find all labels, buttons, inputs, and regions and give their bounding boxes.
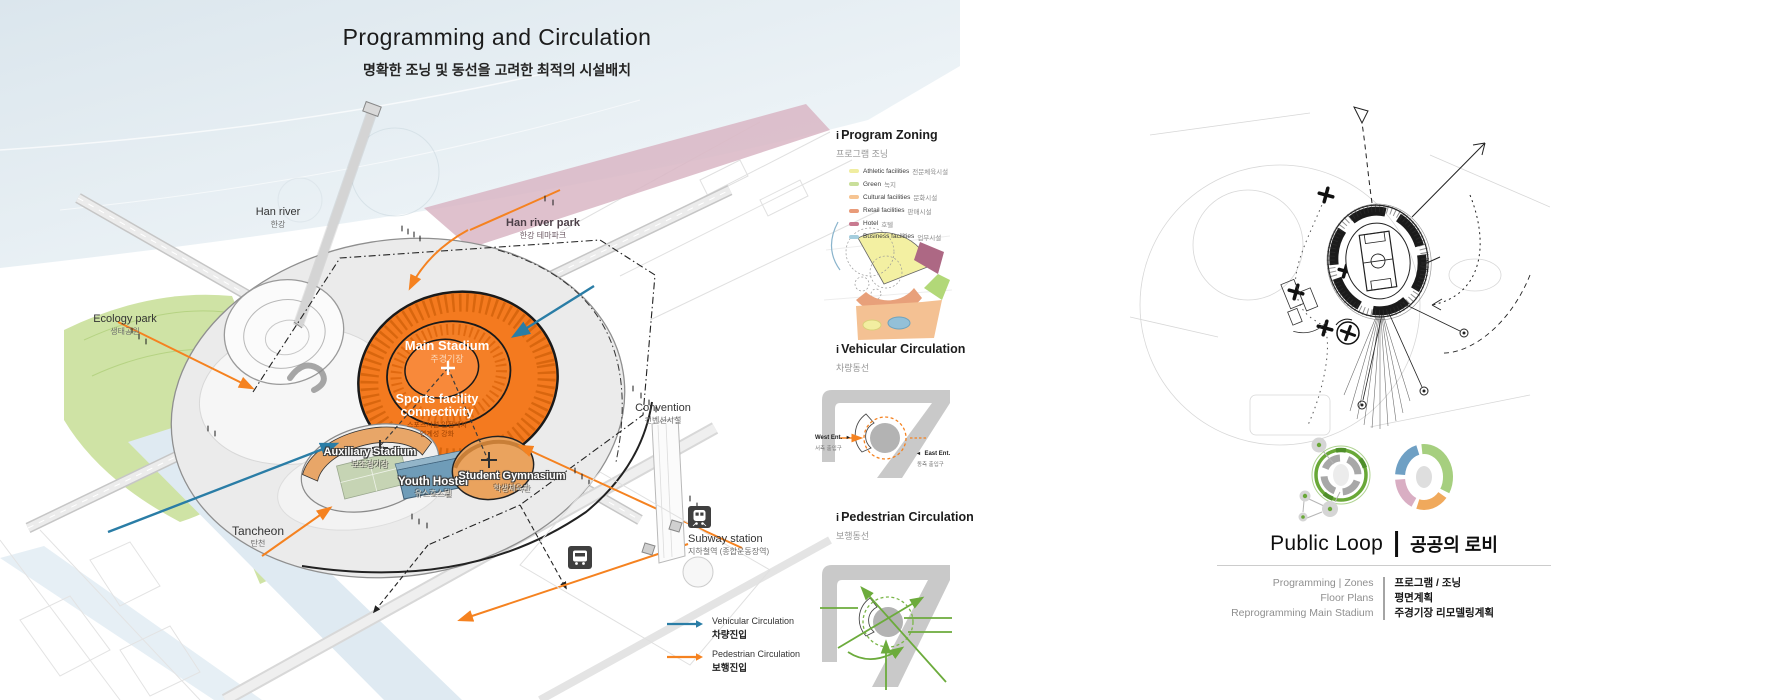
page-subtitle: 명확한 조닝 및 동선을 고려한 최적의 시설배치: [343, 60, 652, 80]
program-row: Programming | Zones: [1196, 576, 1374, 591]
label-tancheon: Tancheon 탄천: [232, 524, 284, 549]
program-row: Reprogramming Main Stadium: [1196, 606, 1374, 621]
legend-vehicular: Vehicular Circulation 차량진입: [666, 616, 800, 641]
label-east-entrance: ◂ East Ent. 동측 출입구: [917, 441, 950, 469]
info-icon: i: [836, 344, 839, 356]
color-swatch: [849, 235, 859, 239]
label-han-river-park: Han river park 한강 테마파크: [506, 217, 580, 241]
zoning-legend-item: Cultural facilities문화시설: [849, 192, 948, 202]
info-icon: i: [836, 130, 839, 142]
divider-bar: [1395, 531, 1398, 557]
info-icon: i: [836, 512, 839, 524]
zoning-legend: Athletic facilities전문체육시설 Green녹지 Cultur…: [849, 166, 948, 245]
subway-icon: [688, 506, 711, 528]
legend-pedestrian: Pedestrian Circulation 보행진입: [666, 649, 800, 674]
color-swatch: [849, 209, 859, 213]
pedestrian-mini-diagram: [820, 565, 952, 690]
board-title-block: Programming and Circulation 명확한 조닝 및 동선을…: [343, 24, 652, 80]
map-legend: Vehicular Circulation 차량진입 Pedestrian Ci…: [666, 616, 800, 682]
page-title: Programming and Circulation: [343, 24, 652, 51]
label-connectivity: Sports facility connectivity 스포츠시설 인접배치 …: [396, 393, 479, 439]
color-swatch: [849, 182, 859, 186]
label-convention: Convention 컨벤션시설: [635, 402, 691, 426]
color-swatch: [849, 222, 859, 226]
zoning-legend-item: Hotel호텔: [849, 219, 948, 229]
label-ecology-park: Ecology park 생태공원: [93, 313, 157, 337]
section-pedestrian-circulation: iPedestrian Circulation 보행동선: [836, 508, 974, 542]
public-loop-title: Public Loop 공공의 로비: [1270, 531, 1498, 557]
sketch-dash-path: [1295, 195, 1327, 425]
label-student-gymnasium: Student Gymnasium 학생체육관: [459, 470, 566, 494]
horizontal-rule: [1217, 565, 1551, 566]
label-han-river: Han river 한강: [256, 206, 301, 230]
zoning-legend-item: Athletic facilities전문체육시설: [849, 166, 948, 176]
program-row: 프로그램 / 조닝: [1395, 576, 1573, 591]
color-swatch: [849, 195, 859, 199]
zoning-legend-item: Business facilities업무시설: [849, 232, 948, 242]
sketch-buildings: [1275, 274, 1327, 338]
label-main-stadium: Main Stadium 주경기장: [405, 338, 490, 366]
concept-sketch-svg: [1130, 95, 1550, 455]
presentation-board: Programming and Circulation 명확한 조닝 및 동선을…: [0, 0, 1772, 700]
label-youth-hostel: Youth Hostel 유스호스텔: [398, 475, 468, 499]
color-swatch: [849, 169, 859, 173]
program-list: Programming | Zones Floor Plans Reprogra…: [1196, 576, 1573, 621]
program-row: 평면계획: [1395, 591, 1573, 606]
label-auxiliary-stadium: Auxiliary Stadium 보조경기장: [324, 446, 417, 470]
vertical-divider: [1384, 577, 1385, 620]
program-list-en: Programming | Zones Floor Plans Reprogra…: [1196, 576, 1374, 621]
program-list-ko: 프로그램 / 조닝 평면계획 주경기장 리모델링계획: [1395, 576, 1573, 621]
program-donut-diagram: [1400, 449, 1448, 505]
blue-arrow-icon: [666, 619, 704, 629]
label-subway-station: Subway station 지하철역 (종합운동장역): [688, 533, 769, 557]
zoning-legend-item: Retail facilities판매시설: [849, 206, 948, 216]
network-ring-diagram: [1299, 438, 1377, 522]
label-west-entrance: West Ent. ▸ 서측 출입구: [815, 425, 850, 453]
sketch-plus-marks: [1287, 186, 1352, 336]
zoning-legend-item: Green녹지: [849, 179, 948, 189]
program-row: Floor Plans: [1196, 591, 1374, 606]
arrow-left-icon: ◂: [917, 451, 920, 457]
loop-diagrams-svg: [1290, 428, 1500, 528]
arrow-right-icon: ▸: [847, 435, 850, 441]
bus-icon: [568, 546, 592, 569]
section-vehicular-circulation: iVehicular Circulation 차량동선: [836, 340, 965, 374]
program-row: 주경기장 리모델링계획: [1395, 606, 1573, 621]
sketch-compass: [1336, 319, 1359, 344]
sketch-stadium: [1320, 197, 1439, 326]
orange-arrow-icon: [666, 652, 704, 662]
section-program-zoning: iProgram Zoning 프로그램 조닝: [836, 126, 938, 160]
